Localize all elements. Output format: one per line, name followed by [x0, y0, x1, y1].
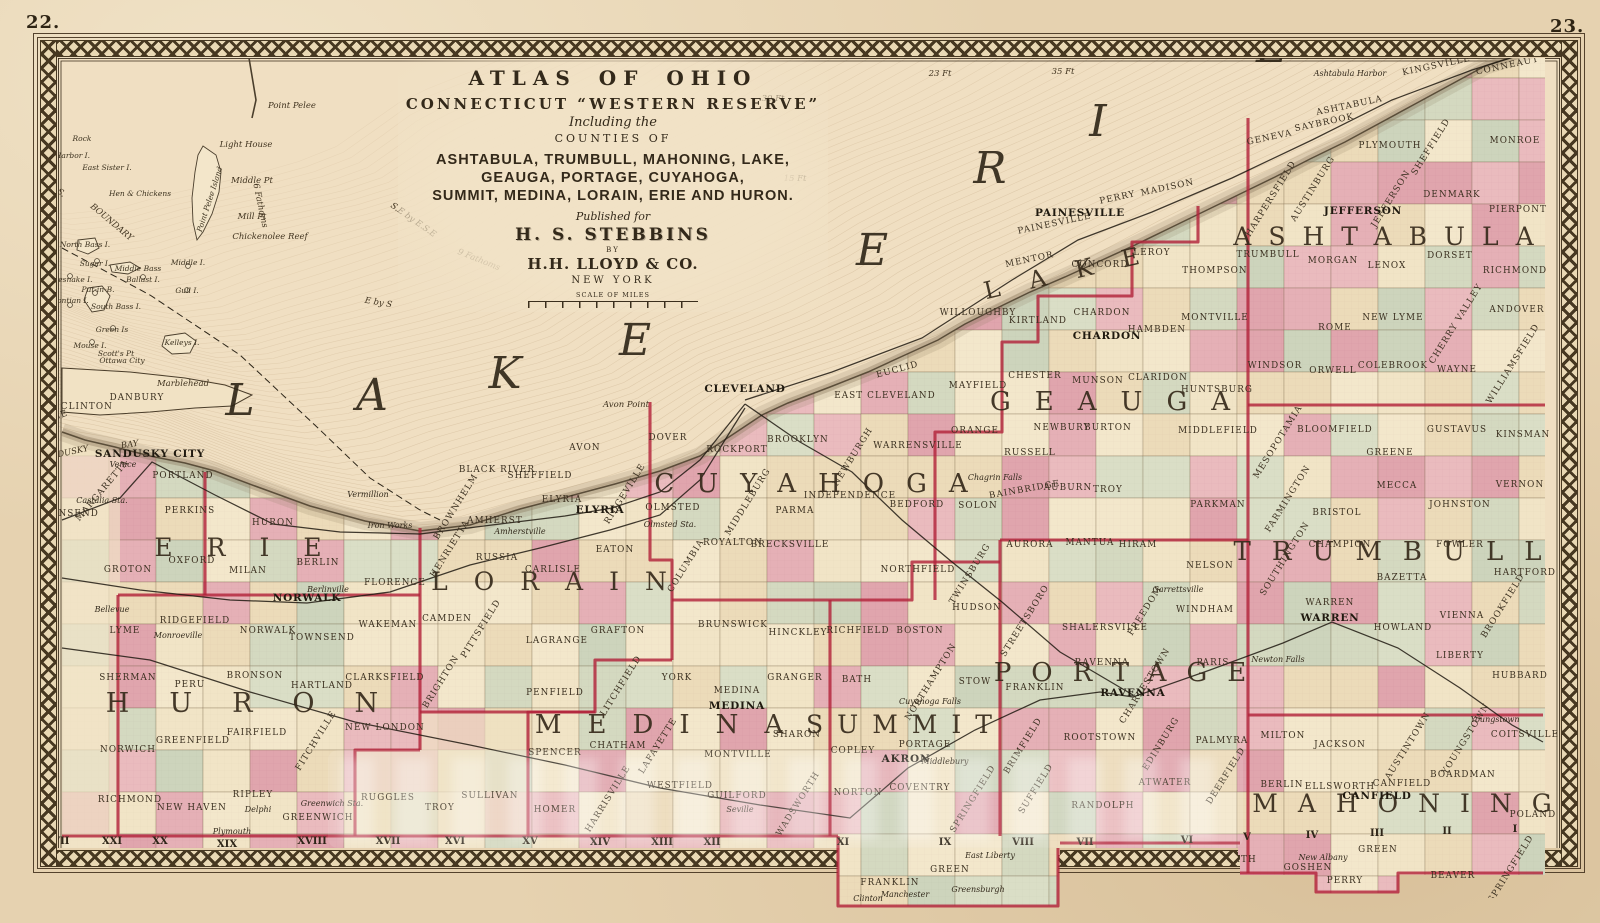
- township-tile: [814, 582, 861, 624]
- township-tile: [1190, 288, 1237, 330]
- county-list-3: SUMMIT, MEDINA, LORAIN, ERIE AND HURON.: [398, 188, 828, 204]
- township-label: FRANKLIN: [860, 878, 919, 888]
- township-label: ATWATER: [1138, 778, 1192, 788]
- township-label: HARTLAND: [291, 681, 353, 691]
- township-label: SULLIVAN: [461, 791, 518, 801]
- township-tile: [1143, 456, 1190, 498]
- township-tile: [1190, 456, 1237, 498]
- township-label: JOHNSTON: [1428, 500, 1491, 510]
- township-label: HOMER: [534, 805, 576, 815]
- township-tile: [720, 624, 767, 666]
- by-label: BY: [398, 246, 828, 254]
- city-label: ELYRIA: [576, 504, 625, 516]
- township-tile: [673, 624, 720, 666]
- township-tile: [814, 498, 861, 540]
- island-label: Gull I.: [175, 286, 198, 295]
- scale-bar-rule: [528, 301, 698, 308]
- township-tile: [1331, 162, 1378, 204]
- township-label: EATON: [596, 545, 635, 555]
- township-label: CONCORD: [1072, 260, 1129, 270]
- township-tile: [250, 750, 297, 792]
- township-label: AURORA: [1005, 540, 1053, 550]
- township-tile: [767, 582, 814, 624]
- township-label: GRAFTON: [591, 626, 646, 636]
- township-label: WAKEMAN: [359, 620, 418, 630]
- township-label: GREEN: [1358, 845, 1398, 855]
- township-tile: [1378, 456, 1425, 498]
- township-tile: [532, 834, 579, 876]
- township-label: GREENWICH: [282, 813, 353, 823]
- township-label: RANDOLPH: [1071, 801, 1134, 811]
- township-tile: [156, 750, 203, 792]
- township-tile: [861, 582, 908, 624]
- county-list-1: ASHTABULA, TRUMBULL, MAHONING, LAKE,: [398, 152, 828, 168]
- township-label: PARIS: [1196, 658, 1229, 668]
- township-label: BERLIN: [296, 558, 339, 568]
- township-tile: [1425, 666, 1472, 708]
- township-label: BAZETTA: [1377, 573, 1428, 583]
- township-label: MONROE: [1490, 136, 1541, 146]
- township-tile: [1378, 582, 1425, 624]
- township-tile: [1049, 792, 1096, 834]
- published-for: Published for: [398, 210, 828, 223]
- township-tile: [1190, 834, 1237, 876]
- city-label: CANFIELD: [1342, 790, 1411, 802]
- including-the: Including the: [398, 115, 828, 130]
- township-tile: [1096, 834, 1143, 876]
- village-label: Iron Works: [367, 521, 413, 530]
- township-label: HUBBARD: [1492, 671, 1548, 681]
- township-tile: [1049, 582, 1096, 624]
- township-tile: [1331, 498, 1378, 540]
- township-label: CHATHAM: [590, 741, 647, 751]
- township-tile: [485, 666, 532, 708]
- township-label: TOWNSEND: [289, 633, 355, 643]
- township-label: PARMA: [776, 506, 815, 516]
- publisher-lloyd: H.H. LLOYD & CO.: [398, 255, 828, 273]
- township-label: RUSSIA: [476, 553, 518, 563]
- township-tile: [1237, 288, 1284, 330]
- township-label: HOWLAND: [1374, 623, 1433, 633]
- map-title-block: ATLAS OF OHIO CONNECTICUT “WESTERN RESER…: [398, 60, 828, 312]
- township-tile: [250, 876, 297, 918]
- township-label: RAVENNA: [1075, 658, 1130, 668]
- township-label: STOW: [959, 677, 992, 687]
- village-label: Manchester: [880, 890, 931, 899]
- village-label: Berlinville: [306, 585, 349, 594]
- township-label: OLMSTED: [645, 503, 700, 513]
- township-label: GUSTAVUS: [1427, 425, 1487, 435]
- map-subtitle: CONNECTICUT “WESTERN RESERVE”: [398, 95, 828, 113]
- city-label: PAINESVILLE: [1035, 207, 1125, 219]
- township-label: PERKINS: [165, 506, 215, 516]
- annotation-label: Chickenolee Reef: [232, 232, 309, 242]
- township-label: DENMARK: [1423, 190, 1480, 200]
- township-label: MIDDLEFIELD: [1178, 426, 1258, 436]
- township-tile: [720, 876, 767, 918]
- township-label: NORTHFIELD: [881, 565, 956, 575]
- township-label: BEAVER: [1431, 871, 1476, 881]
- township-tile: [297, 876, 344, 918]
- township-label: BLOOMFIELD: [1297, 425, 1373, 435]
- village-label: Castalia Sta.: [76, 496, 127, 505]
- township-label: GRANGER: [767, 673, 822, 683]
- township-label: MAYFIELD: [949, 381, 1008, 391]
- township-label: HURON: [252, 518, 294, 528]
- annotation-label: 23 Ft: [928, 69, 952, 79]
- township-label: WESTFIELD: [647, 781, 713, 791]
- township-tile: [1143, 792, 1190, 834]
- township-label: NORWICH: [100, 745, 156, 755]
- township-label: BRONSON: [227, 671, 284, 681]
- township-label: AUBURN: [1043, 483, 1093, 493]
- range-numeral: IV: [1306, 830, 1319, 841]
- township-tile: [203, 876, 250, 918]
- range-numeral: XVIII: [297, 836, 327, 847]
- township-tile: [1284, 372, 1331, 414]
- township-label: PENFIELD: [526, 688, 584, 698]
- range-numeral: XIX: [217, 839, 237, 850]
- annotation-label: Light House: [219, 140, 273, 150]
- township-label: NEW LONDON: [345, 723, 425, 733]
- village-label: Greensburgh: [951, 885, 1004, 894]
- township-tile: [1378, 666, 1425, 708]
- township-label: BRECKSVILLE: [751, 540, 830, 550]
- range-numeral: XI: [837, 837, 850, 848]
- township-tile: [579, 876, 626, 918]
- village-label: New Albany: [1297, 853, 1348, 862]
- township-tile: [1425, 876, 1472, 918]
- village-label: Bellevue: [94, 605, 130, 614]
- township-label: HUNTSBURG: [1181, 385, 1253, 395]
- island-label: Rock: [72, 134, 92, 143]
- township-label: BROOKLYN: [767, 435, 829, 445]
- atlas-title: ATLAS OF OHIO: [398, 66, 828, 90]
- township-tile: [1096, 750, 1143, 792]
- township-tile: [1472, 78, 1519, 120]
- township-label: MECCA: [1377, 481, 1418, 491]
- township-label: RIPLEY: [233, 790, 274, 800]
- township-tile: [720, 582, 767, 624]
- township-label: CARLISLE: [525, 565, 581, 575]
- island-label: Rattlesnake I.: [38, 275, 92, 284]
- township-label: NEW LYME: [1362, 313, 1423, 323]
- township-label: RICHMOND: [98, 795, 162, 805]
- lake-letter: L: [224, 375, 254, 426]
- township-label: LEROY: [1133, 248, 1170, 258]
- township-label: KIRTLAND: [1009, 316, 1067, 326]
- township-label: NELSON: [1186, 561, 1234, 571]
- island-label: South Bass I.: [91, 302, 141, 311]
- range-numeral: XVI: [445, 836, 466, 847]
- island-label: North Bass I.: [59, 240, 110, 249]
- range-numeral: IX: [939, 837, 952, 848]
- township-label: SHERMAN: [99, 673, 157, 683]
- village-label: Youngstown: [1471, 715, 1520, 724]
- township-label: SPENCER: [528, 748, 582, 758]
- township-label: BEDFORD: [890, 500, 945, 510]
- township-label: VERNON: [1495, 480, 1545, 490]
- township-label: TROY: [1093, 485, 1123, 495]
- township-tile: [1378, 876, 1425, 918]
- township-label: THOMPSON: [1182, 266, 1247, 276]
- village-label: Cuyahoga Falls: [899, 697, 961, 706]
- township-tile: [532, 666, 579, 708]
- township-tile: [1143, 876, 1190, 918]
- township-label: YORK: [661, 673, 693, 683]
- township-label: PERU: [175, 680, 206, 690]
- township-tile: [814, 792, 861, 834]
- village-label: Amherstville: [493, 527, 546, 536]
- township-label: JACKSON: [1313, 740, 1366, 750]
- annotation-label: Point Pelee: [267, 101, 316, 111]
- township-label: COLEBROOK: [1358, 361, 1428, 371]
- lake-letter: I: [1088, 96, 1108, 147]
- township-tile: [1378, 372, 1425, 414]
- township-tile: [908, 582, 955, 624]
- township-label: TROY: [425, 803, 455, 813]
- scale-bar: SCALE OF MILES: [398, 291, 828, 308]
- island-label: Green Is: [96, 325, 129, 334]
- township-label: BOSTON: [896, 626, 943, 636]
- township-label: SHEFFIELD: [507, 471, 572, 481]
- township-tile: [1284, 876, 1331, 918]
- township-tile: [1096, 708, 1143, 750]
- township-label: GREEN: [930, 865, 970, 875]
- lake-letter: E: [1255, 22, 1288, 73]
- township-label: PIERPONT: [1489, 205, 1547, 215]
- township-label: EAST CLEVELAND: [834, 391, 936, 401]
- township-tile: [1143, 330, 1190, 372]
- township-tile: [1143, 498, 1190, 540]
- annotation-label: 35 Ft: [1052, 67, 1075, 77]
- township-label: MONTVILLE: [1181, 313, 1249, 323]
- township-tile: [814, 750, 861, 792]
- lake-letter: R: [972, 143, 1006, 194]
- township-label: GUILFORD: [707, 791, 767, 801]
- township-label: LENOX: [1368, 261, 1407, 271]
- range-numeral: III: [1370, 828, 1384, 839]
- township-tile: [1284, 498, 1331, 540]
- township-label: BRISTOL: [1312, 508, 1361, 518]
- range-numeral: I: [1513, 824, 1518, 835]
- city-label: RAVENNA: [1100, 687, 1165, 699]
- township-tile: [344, 582, 391, 624]
- township-label: WILLOUGHBY: [940, 308, 1017, 318]
- township-label: ROCKPORT: [706, 445, 767, 455]
- village-label: Newton Falls: [1250, 655, 1304, 664]
- township-tile: [1049, 498, 1096, 540]
- township-label: GREENFIELD: [156, 736, 230, 746]
- scale-bar-label: SCALE OF MILES: [398, 291, 828, 299]
- island-label: Ballast I.: [125, 275, 160, 284]
- township-label: HIRAM: [1119, 540, 1158, 550]
- range-numeral: II: [1442, 826, 1452, 837]
- township-label: ORWELL: [1309, 366, 1356, 376]
- township-label: BOARDMAN: [1430, 770, 1496, 780]
- township-label: ROME: [1318, 323, 1352, 333]
- township-tile: [1519, 876, 1566, 918]
- township-tile: [861, 834, 908, 876]
- township-label: CLARKSFIELD: [345, 673, 424, 683]
- township-label: AMHERST: [466, 516, 523, 526]
- range-numeral: VII: [1075, 837, 1093, 848]
- township-label: LIBERTY: [1436, 651, 1484, 661]
- publisher-city: NEW YORK: [398, 275, 828, 286]
- township-tile: [861, 540, 908, 582]
- township-label: ORANGE: [951, 426, 999, 436]
- township-label: WARRENSVILLE: [873, 441, 962, 451]
- range-numeral: XVII: [376, 836, 401, 847]
- township-label: BERLIN: [1260, 780, 1303, 790]
- county-label: ASHTABULA: [1232, 222, 1550, 251]
- township-label: GREENE: [1366, 448, 1413, 458]
- township-tile: [1425, 372, 1472, 414]
- township-tile: [1143, 288, 1190, 330]
- township-label: OXFORD: [169, 556, 216, 566]
- township-tile: [297, 624, 344, 666]
- island-label: N. Harbor I.: [43, 151, 90, 160]
- township-label: SOLON: [958, 501, 998, 511]
- range-numeral: XII: [703, 837, 720, 848]
- range-numeral: VIII: [1011, 837, 1034, 848]
- township-tile: [391, 876, 438, 918]
- township-tile: [720, 834, 767, 876]
- city-label: JEFFERSON: [1323, 205, 1402, 217]
- township-label: DOVER: [648, 433, 687, 443]
- township-label: PLYMOUTH: [1359, 141, 1422, 151]
- township-tile: [1049, 876, 1096, 918]
- township-tile: [861, 792, 908, 834]
- township-label: MONTVILLE: [704, 750, 772, 760]
- township-tile: [1331, 372, 1378, 414]
- village-label: Delphi: [244, 805, 272, 814]
- township-tile: [1049, 750, 1096, 792]
- township-label: LYME: [110, 626, 141, 636]
- township-tile: [485, 876, 532, 918]
- township-label: CAMDEN: [422, 614, 472, 624]
- township-label: GROTON: [104, 565, 152, 575]
- village-label: Seville: [726, 805, 753, 814]
- township-label: COITSVILLE: [1491, 730, 1559, 740]
- township-label: PORT CLINTON: [27, 402, 113, 412]
- township-tile: [767, 834, 814, 876]
- island-label: Kelleys I.: [164, 338, 200, 347]
- township-label: RICHMOND: [1483, 266, 1547, 276]
- township-label: GOSHEN: [1284, 863, 1333, 873]
- range-numeral: XV: [522, 836, 538, 847]
- township-label: PERRY: [1327, 876, 1364, 886]
- lake-letter: E: [855, 225, 888, 276]
- township-tile: [1096, 876, 1143, 918]
- island-label: Put-in-B.: [80, 285, 114, 294]
- lake-letter: E: [618, 315, 651, 366]
- township-label: BURTON: [1084, 423, 1132, 433]
- township-tile: [344, 876, 391, 918]
- township-label: PARKMAN: [1190, 500, 1245, 510]
- township-tile: [1096, 414, 1143, 456]
- township-label: MORGAN: [1308, 256, 1359, 266]
- township-label: HUDSON: [952, 603, 1002, 613]
- county-label: HURON: [106, 688, 418, 719]
- township-tile: [1378, 834, 1425, 876]
- village-label: Greenwich Sta.: [301, 799, 363, 808]
- range-numeral: V: [1242, 832, 1251, 843]
- township-label: COVENTRY: [889, 783, 950, 793]
- village-label: East Liberty: [964, 851, 1015, 860]
- township-tile: [250, 834, 297, 876]
- township-label: ANDOVER: [1488, 305, 1544, 315]
- township-label: LAGRANGE: [526, 636, 588, 646]
- township-label: INDEPENDENCE: [804, 491, 896, 501]
- township-label: PORTAGE: [899, 740, 952, 750]
- township-tile: [626, 792, 673, 834]
- township-tile: [1049, 708, 1096, 750]
- township-tile: [1378, 288, 1425, 330]
- township-label: FLORENCE: [364, 578, 426, 588]
- township-label: NEW HAVEN: [157, 803, 227, 813]
- township-label: MEDINA: [714, 686, 761, 696]
- township-label: BRUNSWICK: [698, 620, 768, 630]
- township-tile: [1472, 456, 1519, 498]
- township-label: RICHFIELD: [826, 626, 889, 636]
- township-label: DORSET: [1427, 251, 1473, 261]
- township-tile: [391, 624, 438, 666]
- annotation-label: Avon Point: [602, 400, 650, 410]
- island-label: Sugar I.: [80, 259, 111, 268]
- township-tile: [62, 876, 109, 918]
- township-tile: [1002, 330, 1049, 372]
- island-label: Middle Bass: [114, 264, 162, 273]
- township-tile: [908, 792, 955, 834]
- township-label: BATH: [842, 675, 872, 685]
- village-label: Olmsted Sta.: [644, 520, 696, 529]
- township-label: FRANKLIN: [1005, 683, 1064, 693]
- village-label: Clinton: [853, 894, 883, 903]
- township-label: RIDGEFIELD: [160, 616, 231, 626]
- township-label: NORWALK: [240, 626, 296, 636]
- township-label: NORTON: [834, 788, 883, 798]
- township-tile: [203, 750, 250, 792]
- township-label: SMITH: [1219, 855, 1257, 865]
- township-tile: [156, 876, 203, 918]
- township-label: MUNSON: [1072, 376, 1124, 386]
- township-label: MANTUA: [1065, 538, 1114, 548]
- city-label: WARREN: [1299, 612, 1359, 624]
- annotation-label: Middle Pt: [230, 176, 273, 186]
- township-label: PALMYRA: [1196, 736, 1249, 746]
- village-label: Venice: [110, 460, 137, 469]
- village-label: Monroeville: [153, 631, 203, 640]
- township-tile: [532, 876, 579, 918]
- township-label: POLAND: [1510, 810, 1557, 820]
- township-label: CHARDON: [1073, 308, 1130, 318]
- range-numeral: XVII: [45, 836, 70, 847]
- city-label: CLEVELAND: [704, 383, 785, 395]
- village-label: Vermillion: [347, 490, 388, 499]
- township-label: ROOTSTOWN: [1064, 733, 1137, 743]
- township-label: DANBURY: [110, 393, 165, 403]
- village-label: Middlebury: [921, 757, 969, 766]
- township-tile: [1425, 834, 1472, 876]
- township-tile: [767, 498, 814, 540]
- island-label: Middle I.: [170, 258, 205, 267]
- island-label: Strontian I.: [45, 296, 89, 305]
- township-label: KINSMAN: [1496, 430, 1551, 440]
- township-tile: [1190, 876, 1237, 918]
- township-tile: [767, 876, 814, 918]
- township-label: RUGGLES: [361, 793, 415, 803]
